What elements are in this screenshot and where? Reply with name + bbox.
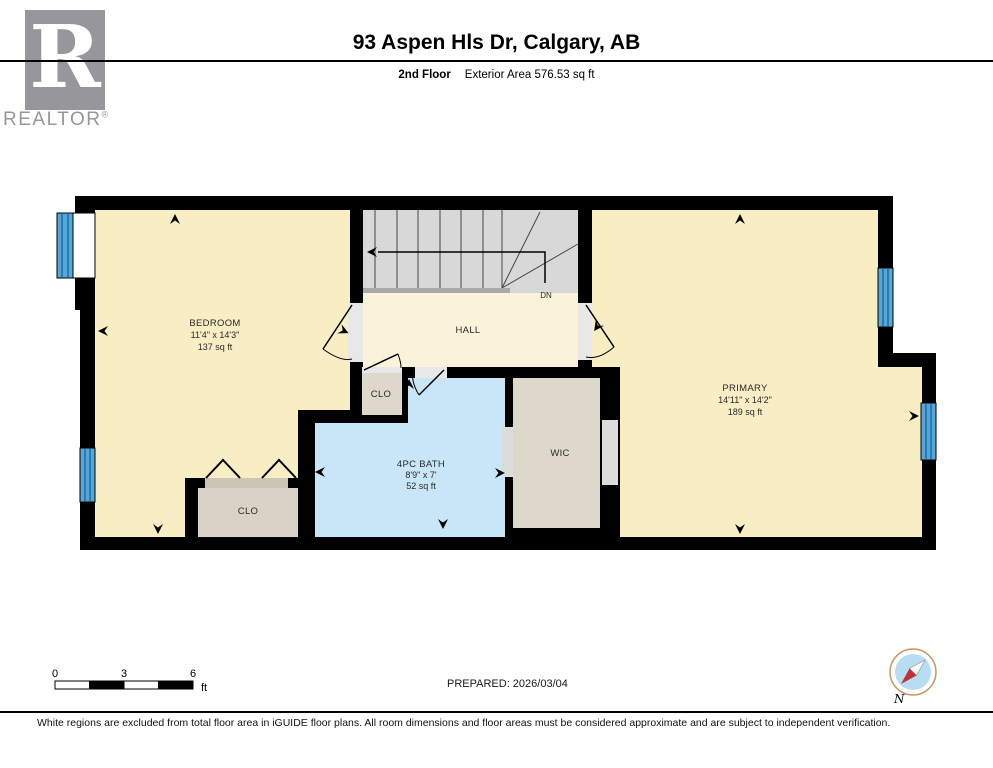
scale-unit-label: ft bbox=[201, 682, 207, 694]
bath-dims: 8'9" x 7' bbox=[405, 470, 436, 480]
compass-icon: N bbox=[890, 649, 936, 706]
primary-area: 189 sq ft bbox=[728, 407, 763, 417]
footer-divider bbox=[0, 711, 993, 713]
hall-label: HALL bbox=[456, 325, 481, 336]
clo-lower-sill bbox=[205, 478, 288, 488]
clo-lower-label: CLO bbox=[238, 506, 258, 517]
wic-label: WIC bbox=[550, 448, 569, 459]
window-right-top bbox=[878, 268, 893, 327]
floor-plan-page: R REALTOR® 93 Aspen Hls Dr, Calgary, AB … bbox=[0, 0, 993, 768]
stairs-dn-label: DN bbox=[540, 291, 552, 300]
bedroom-dims: 11'4" x 14'3" bbox=[191, 330, 240, 340]
bedroom-door-gap bbox=[348, 303, 363, 362]
clo-upper-label: CLO bbox=[371, 389, 391, 400]
disclaimer-text: White regions are excluded from total fl… bbox=[37, 717, 967, 729]
primary-label: PRIMARY bbox=[722, 383, 768, 394]
floor-plan: BEDROOM 11'4" x 14'3" 137 sq ft HALL CLO… bbox=[0, 0, 993, 768]
scale-tick-6: 6 bbox=[190, 668, 196, 680]
scale-tick-3: 3 bbox=[121, 668, 127, 680]
window-left-top bbox=[57, 213, 73, 278]
bath-area: 52 sq ft bbox=[406, 481, 436, 491]
scale-tick-0: 0 bbox=[52, 668, 58, 680]
bedroom-area: 137 sq ft bbox=[198, 342, 233, 352]
bath-left-wall bbox=[298, 410, 315, 537]
window-right-bottom bbox=[921, 403, 936, 460]
window-niche bbox=[73, 213, 95, 278]
prepared-date: PREPARED: 2026/03/04 bbox=[447, 678, 568, 690]
compass-north-label: N bbox=[893, 692, 905, 706]
scale-bar: 0 3 6 ft bbox=[52, 668, 207, 694]
stairs-edge bbox=[363, 288, 510, 293]
wic-door-gap-right bbox=[602, 420, 618, 485]
room-primary bbox=[592, 210, 922, 537]
primary-dims: 14'11" x 14'2" bbox=[718, 395, 772, 405]
bath-label: 4PC BATH bbox=[397, 459, 445, 470]
bedroom-label: BEDROOM bbox=[189, 318, 240, 329]
wic-door-gap-left bbox=[502, 427, 513, 477]
window-left-bottom bbox=[80, 448, 95, 502]
